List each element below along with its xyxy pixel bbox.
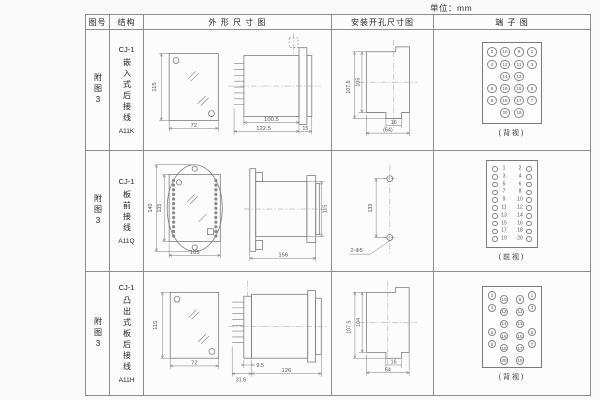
outline-drawing-a11k: 115 72 100.5 122.5 15 — [145, 30, 331, 150]
center-lines — [358, 280, 416, 367]
terminal-pin-1: 1 — [527, 47, 536, 56]
figure-number: 附图3 — [94, 194, 102, 228]
terminal-pin-8: 8 — [488, 340, 496, 348]
terminal-pin-16: 16 — [500, 332, 508, 340]
terminal-number-2: 2 — [519, 167, 522, 172]
dim-inner-height: 135 — [156, 204, 162, 213]
front-view — [170, 292, 218, 358]
terminal-number-17: 17 — [501, 229, 507, 234]
structure-model: CJ-1 — [119, 45, 135, 54]
dimension-lines — [352, 52, 409, 136]
mounting-drawing-a11k: 107.5 105 16 (64) — [333, 30, 433, 150]
terminal-number-3: 3 — [503, 174, 506, 179]
dim-cutout-inner-height: 105 — [355, 78, 361, 87]
terminal-pin-14: 14 — [500, 320, 508, 328]
terminal-number-7: 7 — [503, 190, 506, 195]
dimension-lines — [349, 179, 391, 254]
front-view — [169, 54, 218, 121]
terminal-pin-15: 15 — [514, 84, 523, 93]
dim-cutout-width: (64) — [383, 128, 393, 134]
terminal-number-9: 9 — [503, 198, 506, 203]
terminal-pin — [492, 236, 498, 242]
terminal-pin — [492, 174, 498, 180]
terminal-pin — [526, 205, 532, 211]
terminal-pin — [526, 229, 532, 235]
terminal-number-15: 15 — [501, 221, 507, 226]
structure-cell-r1: CJ-1 嵌入式后接线 A11K — [110, 30, 144, 151]
terminal-cell-r3: 2109141211314136161558181772019 (背视) — [434, 272, 590, 395]
terminal-pin — [492, 221, 498, 227]
terminal-pin-9: 9 — [516, 295, 524, 303]
spec-table: 图号 结构 外 形 尺 寸 图 安装开孔尺寸图 端 子 图 附图3 CJ-1 嵌… — [85, 14, 591, 396]
terminal-pin-20: 20 — [500, 356, 508, 364]
col-header-figure: 图号 — [86, 15, 110, 30]
structure-mount-type: 凸出式板后接线 — [123, 296, 131, 373]
terminal-pin-8: 8 — [487, 96, 496, 105]
terminal-pin — [492, 190, 498, 196]
dim-front-width: 72 — [191, 360, 197, 366]
dim-plate-width: 105 — [189, 250, 200, 256]
terminal-number-14: 14 — [517, 213, 523, 218]
terminal-number-16: 16 — [517, 221, 523, 226]
structure-cell-r2: CJ-1 板前接线 A11Q — [110, 151, 144, 272]
terminal-pin-2: 2 — [487, 47, 496, 56]
structure-cell-r3: CJ-1 凸出式板后接线 A11H — [110, 272, 144, 395]
terminal-pin-6: 6 — [488, 328, 496, 336]
mounting-cell-r2: 133 2-Φ5 — [332, 151, 434, 272]
side-view — [234, 38, 312, 125]
dimension-lines — [160, 292, 321, 376]
terminal-pin-2: 2 — [488, 291, 496, 299]
terminal-cell-r1: 2109141211314136161558181772019 (背视) — [434, 30, 590, 151]
terminal-pin — [526, 213, 532, 219]
terminal-number-18: 18 — [517, 229, 523, 234]
terminal-number-5: 5 — [503, 182, 506, 187]
terminal-pin-5: 5 — [527, 84, 536, 93]
structure-mount-type: 嵌入式后接线 — [123, 58, 131, 124]
dim-pin-length: 9.5 — [256, 362, 263, 368]
terminal-number-13: 13 — [501, 213, 507, 218]
figure-cell-r3: 附图3 — [86, 272, 110, 395]
dim-total-length: 122.5 — [256, 126, 271, 132]
figure-cell-r1: 附图3 — [86, 30, 110, 151]
mounting-cell-r3: 107.5 104 16 64 — [332, 272, 434, 395]
terminal-pin — [526, 166, 532, 172]
terminal-pin-5: 5 — [528, 328, 536, 336]
unit-label: 单位：mm — [430, 2, 472, 14]
terminal-pin-1: 1 — [528, 291, 536, 299]
center-lines — [358, 40, 417, 128]
terminal-pin-18: 18 — [500, 344, 508, 352]
cutout-shape — [366, 47, 409, 119]
terminal-pin-13: 13 — [514, 72, 523, 81]
structure-code: A11Q — [118, 238, 134, 245]
dimension-lines — [159, 54, 311, 135]
figure-number: 附图3 — [94, 73, 102, 107]
dim-hole-span: 133 — [368, 204, 374, 213]
terminal-caption: (背视) — [499, 128, 526, 138]
terminal-pin-7: 7 — [527, 96, 536, 105]
terminal-number-8: 8 — [519, 190, 522, 195]
dim-slot-width: 16 — [390, 359, 396, 365]
mounting-drawing-a11q: 133 2-Φ5 — [333, 151, 433, 271]
side-view — [249, 169, 319, 252]
terminal-pin — [492, 182, 498, 188]
terminal-diagram-back-view: 2109141211314136161558181772019 — [482, 42, 542, 124]
terminal-pin — [492, 166, 498, 172]
terminal-pin-13: 13 — [516, 320, 524, 328]
terminal-pin-4: 4 — [487, 60, 496, 69]
terminal-number-12: 12 — [517, 206, 523, 211]
dim-cutout-outer-height: 107.5 — [346, 80, 352, 93]
terminal-pin-18: 18 — [500, 96, 509, 105]
terminal-cell-r2: 1234567891011121314151617181920 (前视) — [434, 151, 590, 272]
terminal-pin-17: 17 — [516, 344, 524, 352]
terminal-pin-12: 12 — [500, 60, 509, 69]
terminal-pin-4: 4 — [488, 304, 496, 312]
terminal-pin-10: 10 — [500, 295, 508, 303]
dim-cutout-outer-height: 107.5 — [346, 320, 352, 333]
dim-body-length: 126 — [281, 368, 291, 374]
terminal-caption: (背视) — [499, 372, 526, 382]
dim-base-length: 31.5 — [235, 377, 245, 383]
outline-drawing-a11q: 140 135 105 156 115 — [145, 151, 331, 271]
dim-body-height: 115 — [322, 205, 328, 214]
dim-cutout-width: 64 — [384, 367, 390, 373]
col-header-mounting: 安装开孔尺寸图 — [332, 15, 434, 30]
terminal-pin-20: 20 — [500, 108, 509, 117]
terminal-number-10: 10 — [517, 198, 523, 203]
structure-model: CJ-1 — [119, 177, 135, 186]
figure-number: 附图3 — [94, 317, 102, 351]
col-header-terminal: 端 子 图 — [434, 15, 590, 30]
terminal-diagram-front-view: 1234567891011121314151617181920 — [486, 160, 538, 248]
terminal-pin — [526, 174, 532, 180]
terminal-pin-14: 14 — [500, 72, 509, 81]
terminal-number-6: 6 — [519, 182, 522, 187]
hole-size-label: 2-Φ5 — [350, 248, 362, 254]
outline-cell-r2: 140 135 105 156 115 — [144, 151, 332, 272]
terminal-pin — [526, 190, 532, 196]
terminal-number-4: 4 — [519, 174, 522, 179]
dim-cutout-inner-height: 104 — [355, 317, 361, 326]
terminal-pin — [526, 236, 532, 242]
terminal-pin — [526, 182, 532, 188]
terminal-pin-11: 11 — [514, 60, 523, 69]
terminal-pin-12: 12 — [500, 308, 508, 316]
terminal-number-11: 11 — [501, 206, 506, 211]
figure-cell-r2: 附图3 — [86, 151, 110, 272]
terminal-number-19: 19 — [501, 237, 507, 242]
terminal-pin — [492, 213, 498, 219]
dim-plate-height: 140 — [147, 204, 153, 213]
terminal-diagram-back-view: 2109141211314136161558181772019 — [482, 286, 542, 368]
outline-cell-r3: 115 72 9.5 31.5 126 — [144, 272, 332, 395]
dim-front-height: 115 — [153, 320, 159, 329]
dim-slot-width: 16 — [390, 120, 396, 126]
dim-body-length: 100.5 — [264, 117, 279, 123]
terminal-pin — [526, 197, 532, 203]
structure-mount-type: 板前接线 — [123, 190, 131, 234]
terminal-pin-19: 19 — [516, 356, 524, 364]
dimension-lines — [352, 292, 408, 375]
dim-body-length: 156 — [278, 253, 289, 259]
terminal-pin — [492, 229, 498, 235]
outline-drawing-a11h: 115 72 9.5 31.5 126 — [145, 273, 331, 395]
terminal-pin-7: 7 — [528, 340, 536, 348]
terminal-number-1: 1 — [503, 167, 506, 172]
outline-cell-r1: 115 72 100.5 122.5 15 — [144, 30, 332, 151]
dimension-lines — [154, 165, 324, 261]
terminal-pin-6: 6 — [487, 84, 496, 93]
mounting-drawing-a11h: 107.5 104 16 64 — [333, 273, 433, 395]
col-header-structure: 结构 — [110, 15, 144, 30]
col-header-outline: 外 形 尺 寸 图 — [144, 15, 332, 30]
terminal-pin — [526, 221, 532, 227]
terminal-pin-11: 11 — [516, 308, 524, 316]
terminal-caption: (前视) — [499, 252, 526, 262]
terminal-number-20: 20 — [517, 237, 523, 242]
front-view — [167, 165, 222, 252]
terminal-pin-19: 19 — [514, 108, 523, 117]
dim-front-height: 115 — [151, 82, 157, 92]
terminal-pin-15: 15 — [516, 332, 524, 340]
dim-front-width: 72 — [190, 123, 197, 129]
terminal-pin — [492, 205, 498, 211]
mounting-cell-r1: 107.5 105 16 (64) — [332, 30, 434, 151]
terminal-pin-3: 3 — [528, 304, 536, 312]
structure-code: A11H — [119, 377, 135, 384]
terminal-pin-10: 10 — [500, 47, 509, 56]
terminal-pin-3: 3 — [527, 60, 536, 69]
terminal-pin — [492, 197, 498, 203]
structure-code: A11K — [119, 128, 134, 135]
dim-flange: 15 — [302, 126, 308, 132]
structure-model: CJ-1 — [119, 283, 135, 292]
terminal-pin-9: 9 — [514, 47, 523, 56]
terminal-pin-16: 16 — [500, 84, 509, 93]
terminal-pin-17: 17 — [514, 96, 523, 105]
